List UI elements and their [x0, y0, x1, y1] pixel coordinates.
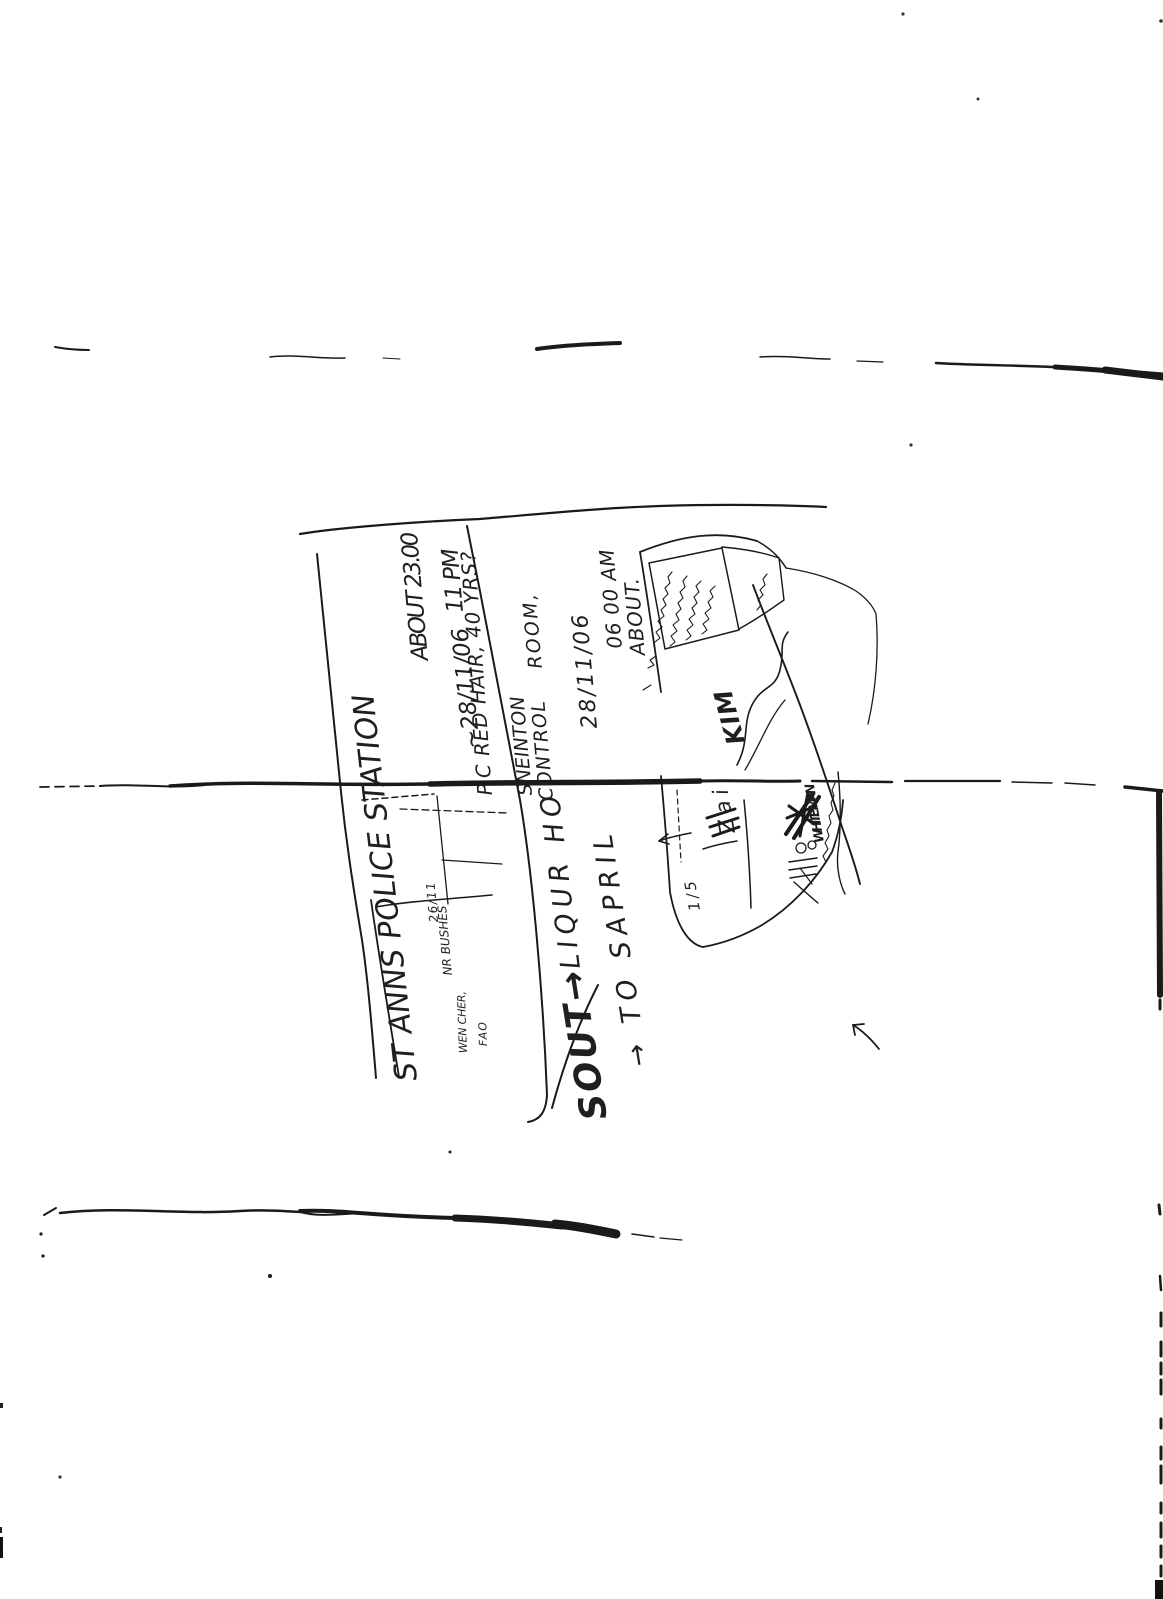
map-whiteman-text: WHITE MAN — [803, 782, 828, 844]
map-fraction-text: 1/5 — [681, 880, 704, 913]
scan-edge-marks-right — [1155, 793, 1163, 1599]
map-zai-text: Zai — [708, 787, 740, 836]
map-second-box — [722, 547, 784, 629]
sketch-map — [640, 535, 879, 1049]
control-word3-text: ROOM, — [519, 593, 547, 670]
scan-specks — [58, 12, 1162, 1478]
scrawl-sout-text: SOUT→ — [552, 968, 616, 1123]
scan-edge-marks-left — [0, 1403, 3, 1558]
scan-sketch-layer: ST ANNS POLICE STATION ABOUT 23.00 11 PM… — [0, 0, 1163, 1599]
illegible-scrawl-small — [757, 574, 767, 610]
fold-crease-bottom — [39, 1151, 682, 1279]
note-2611-text: 26/11 — [424, 882, 441, 923]
map-right-edge — [786, 568, 877, 724]
scrawl-liqur-text: LIQUR HO — [535, 793, 587, 970]
note-fao-text: FAO — [476, 1022, 490, 1047]
station-name-text: ST ANNS POLICE STATION — [346, 692, 425, 1083]
time-main-text: ABOUT 23.00 — [397, 530, 434, 664]
map-note-box — [649, 548, 739, 649]
map-road-line — [753, 585, 860, 884]
map-kim-text: KIM — [708, 687, 750, 748]
note-wencher-text: WEN CHER, — [455, 991, 470, 1053]
map-arrow-left — [659, 833, 691, 844]
control-date-text: 28/11/06 — [568, 613, 603, 730]
table-top-border — [300, 505, 826, 534]
map-arrow-up-left — [853, 1024, 879, 1049]
scanned-document-page: ST ANNS POLICE STATION ABOUT 23.00 11 PM… — [0, 0, 1163, 1599]
fold-crease-middle — [40, 781, 1163, 791]
fold-crease-top — [55, 343, 1163, 377]
